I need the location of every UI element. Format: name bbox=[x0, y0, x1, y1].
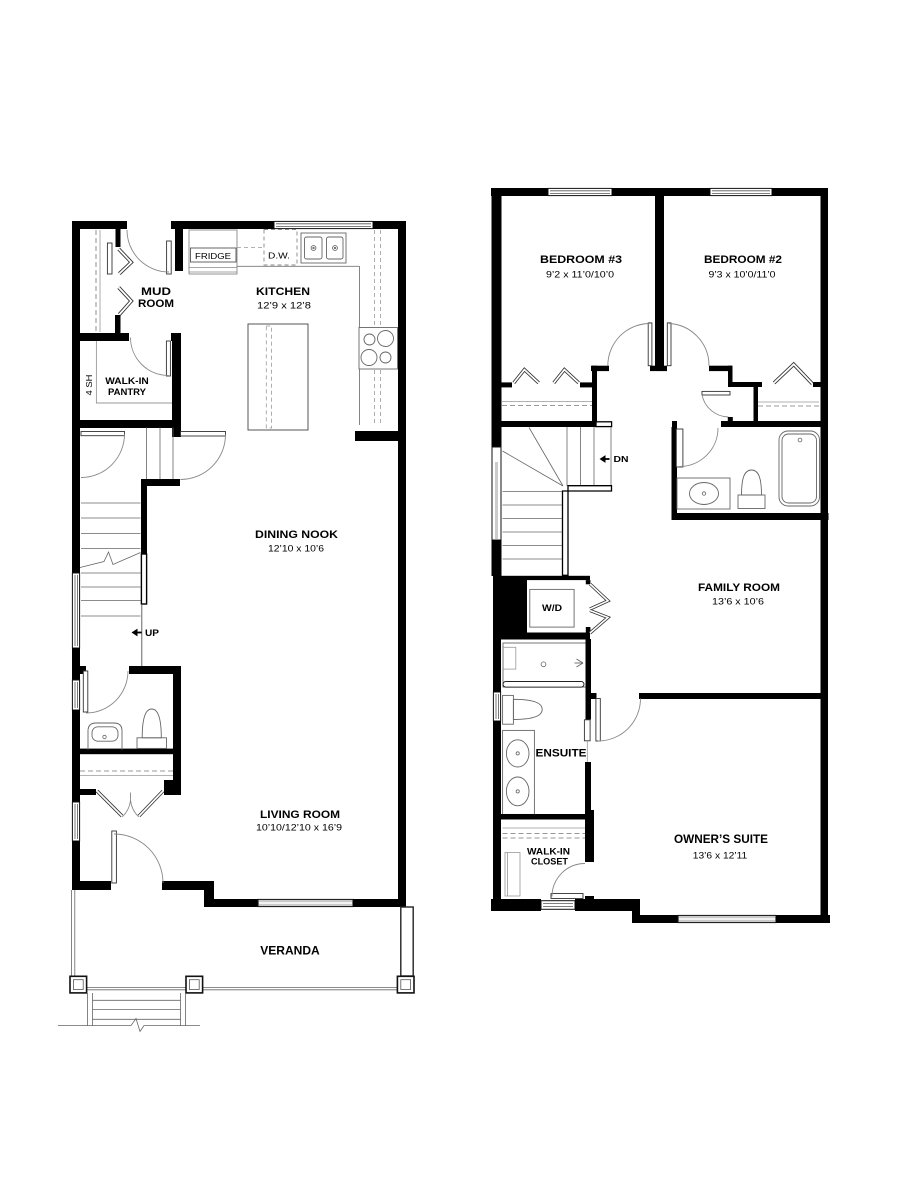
svg-text:WALK-IN: WALK-IN bbox=[105, 376, 149, 387]
svg-text:CLOSET: CLOSET bbox=[531, 856, 568, 867]
svg-text:DINING NOOK: DINING NOOK bbox=[255, 529, 338, 541]
svg-text:13’6 x 10’6: 13’6 x 10’6 bbox=[712, 596, 764, 607]
svg-text:OWNER’S SUITE: OWNER’S SUITE bbox=[674, 834, 768, 846]
svg-text:ROOM: ROOM bbox=[138, 298, 174, 310]
svg-text:LIVING ROOM: LIVING ROOM bbox=[260, 809, 340, 821]
svg-text:BEDROOM #3: BEDROOM #3 bbox=[540, 254, 622, 266]
svg-text:KITCHEN: KITCHEN bbox=[256, 286, 310, 298]
svg-text:FAMILY ROOM: FAMILY ROOM bbox=[698, 582, 780, 594]
svg-text:BEDROOM #2: BEDROOM #2 bbox=[704, 254, 782, 266]
svg-text:D.W.: D.W. bbox=[268, 251, 290, 261]
svg-text:4 SH: 4 SH bbox=[84, 375, 94, 396]
svg-text:UP: UP bbox=[145, 628, 160, 639]
svg-text:13’6 x 12’11: 13’6 x 12’11 bbox=[693, 850, 748, 861]
svg-text:DN: DN bbox=[614, 454, 629, 464]
svg-text:PANTRY: PANTRY bbox=[108, 387, 147, 398]
svg-text:VERANDA: VERANDA bbox=[260, 943, 320, 957]
svg-text:W/D: W/D bbox=[542, 603, 562, 614]
svg-text:FRIDGE: FRIDGE bbox=[195, 251, 231, 261]
svg-text:9’2 x 11’0/10’0: 9’2 x 11’0/10’0 bbox=[546, 269, 614, 280]
svg-text:ENSUITE: ENSUITE bbox=[536, 747, 587, 759]
svg-text:MUD: MUD bbox=[141, 286, 171, 298]
svg-text:12’9 x 12’8: 12’9 x 12’8 bbox=[257, 300, 311, 311]
svg-text:12’10 x 10’6: 12’10 x 10’6 bbox=[268, 543, 324, 554]
svg-text:9’3 x 10’0/11’0: 9’3 x 10’0/11’0 bbox=[709, 269, 776, 280]
svg-text:10’10/12’10 x 16’9: 10’10/12’10 x 16’9 bbox=[256, 822, 342, 833]
